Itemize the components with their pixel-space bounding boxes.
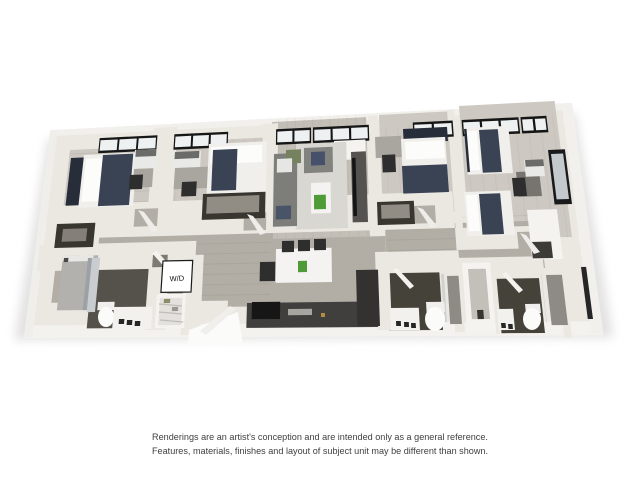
svg-text:W/D: W/D bbox=[169, 274, 185, 284]
svg-text:Renderings are an artist's con: Renderings are an artist's conception an… bbox=[152, 432, 488, 442]
svg-text:Features, materials, finishes: Features, materials, finishes and layout… bbox=[152, 446, 488, 456]
